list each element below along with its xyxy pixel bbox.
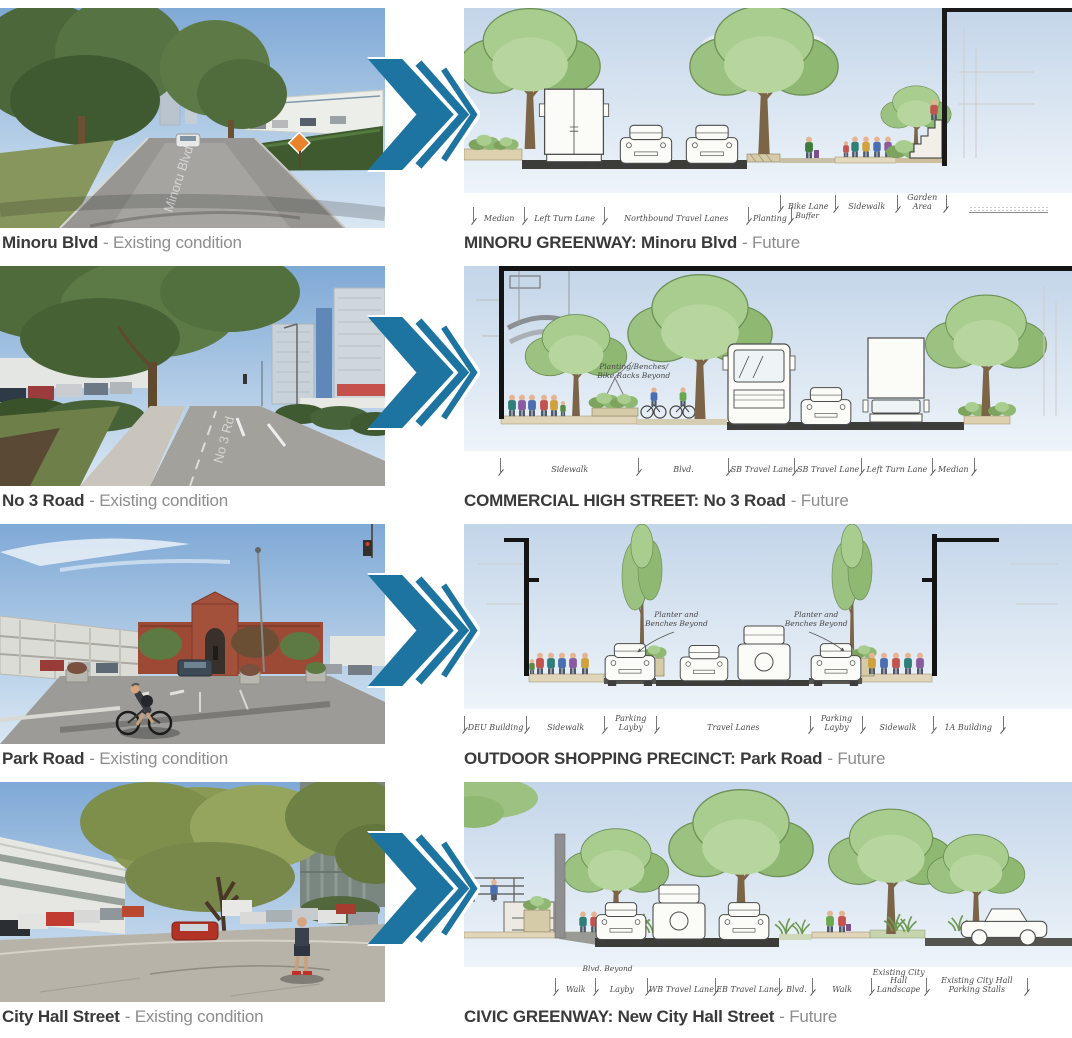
- future-section-no3road: Planting/Benches/ Bike Racks Beyond Side…: [464, 266, 1072, 486]
- dim-label: WB Travel Lane: [649, 986, 714, 995]
- photo-caption: Park Road- Existing condition: [2, 749, 228, 769]
- dim-segment: Northbound Travel Lanes: [604, 207, 748, 221]
- dim-segment: WB Travel Lane: [647, 978, 714, 992]
- street-photo: [0, 524, 385, 744]
- photo-caption: City Hall Street- Existing condition: [2, 1007, 263, 1027]
- dim-label: Left Turn Lane: [534, 215, 595, 224]
- bus-front: [723, 344, 795, 430]
- caption-status: - Future: [742, 233, 800, 252]
- dim-label: EB Travel Lane: [716, 986, 779, 995]
- dim-segment: Blvd.: [779, 978, 812, 992]
- dim-segment: SB Travel Lane: [794, 458, 860, 472]
- photo-caption: Minoru Blvd- Existing condition: [2, 233, 242, 253]
- street-name: Park Road: [2, 749, 84, 768]
- future-caption: OUTDOOR SHOPPING PRECINCT: Park Road- Fu…: [464, 749, 885, 769]
- future-section-parkroad: Planter and Benches Beyond Planter and B…: [464, 524, 1072, 744]
- dim-label: 1A Building: [944, 724, 992, 733]
- scheme-title: COMMERCIAL HIGH STREET: No 3 Road: [464, 491, 786, 510]
- dim-label: Median: [484, 215, 515, 224]
- dim-segment: Parking Layby: [604, 716, 656, 730]
- caption-status: - Existing condition: [89, 749, 228, 768]
- before-after-street-comparison: Minoru Blvd: [0, 0, 1072, 1038]
- transform-arrow-icon: [367, 312, 480, 434]
- dim-segment: Existing City Hall Landscape: [871, 978, 926, 992]
- existing-photo-no3-road: No 3 Rd: [0, 266, 385, 486]
- van-front: [653, 885, 705, 945]
- existing-photo-city-hall-street: [0, 782, 385, 1002]
- dimension-bar: Blvd. Beyond Walk Layby WB Travel Lane E…: [464, 968, 1072, 1000]
- cross-section-illustration: [464, 266, 1072, 451]
- comparison-row-cityhall: Blvd. Beyond Walk Layby WB Travel Lane E…: [0, 782, 1072, 1038]
- dim-label: Sidewalk: [551, 466, 588, 475]
- dim-label: Sidewalk: [848, 203, 885, 212]
- cross-section-illustration: [464, 8, 1072, 193]
- blvd-beyond-annotation: Blvd. Beyond: [583, 964, 633, 973]
- cross-section-illustration: [464, 524, 1072, 709]
- truck-rear: [539, 89, 608, 169]
- dim-label: Left Turn Lane: [867, 466, 928, 475]
- planter-annotation-left: Planter and Benches Beyond: [643, 610, 709, 628]
- caption-status: - Future: [827, 749, 885, 768]
- dim-segment: Sidewalk: [862, 716, 932, 730]
- caption-status: - Existing condition: [89, 491, 228, 510]
- dim-segment: Sidewalk: [835, 195, 897, 209]
- dim-label: Planting: [753, 215, 787, 224]
- dimension-bar: Sidewalk Blvd. SB Travel Lane SB Travel …: [464, 452, 1072, 484]
- street-name: Minoru Blvd: [2, 233, 98, 252]
- dim-label: Travel Lanes: [707, 724, 759, 733]
- transform-arrow-icon: [367, 54, 480, 176]
- dim-label: SB Travel Lane: [731, 466, 793, 475]
- street-name: No 3 Road: [2, 491, 84, 510]
- dim-segment: Median: [473, 207, 524, 221]
- street-photo: [0, 782, 385, 1002]
- truck-front: [863, 338, 929, 430]
- dim-segment: EB Travel Lane: [715, 978, 780, 992]
- dim-segment: Bike Lane: [780, 195, 835, 209]
- dim-segment: 1A Building: [933, 716, 1004, 730]
- scheme-title: MINORU GREENWAY: Minoru Blvd: [464, 233, 737, 252]
- dim-label: Parking Layby: [811, 715, 863, 733]
- dim-label: Northbound Travel Lanes: [624, 215, 728, 224]
- scheme-title: CIVIC GREENWAY: New City Hall Street: [464, 1007, 774, 1026]
- dim-label: DEU Building: [468, 724, 524, 733]
- dim-segment: Garden Area: [897, 195, 947, 209]
- dim-segment: Walk: [812, 978, 870, 992]
- dim-segment: Planting: [748, 207, 793, 221]
- future-caption: MINORU GREENWAY: Minoru Blvd- Future: [464, 233, 800, 253]
- dimension-bar: DEU Building Sidewalk Parking Layby Trav…: [464, 710, 1072, 742]
- dim-label: SB Travel Lane: [797, 466, 859, 475]
- dim-label: Blvd.: [786, 986, 807, 995]
- dim-segment: Left Turn Lane: [861, 458, 932, 472]
- cross-section-illustration: [464, 782, 1072, 967]
- dim-label: Parking Layby: [605, 715, 656, 733]
- van-front: [738, 626, 790, 686]
- existing-photo-park-road: [0, 524, 385, 744]
- buffer-callout: Buffer: [795, 211, 819, 220]
- dim-segment: Sidewalk: [526, 716, 604, 730]
- future-section-cityhall: Blvd. Beyond Walk Layby WB Travel Lane E…: [464, 782, 1072, 1002]
- dim-label: Existing City Hall Landscape: [872, 969, 926, 995]
- planter-annotation-right: Planter and Benches Beyond: [783, 610, 849, 628]
- caption-status: - Future: [791, 491, 849, 510]
- scheme-title: OUTDOOR SHOPPING PRECINCT: Park Road: [464, 749, 822, 768]
- dim-label: Sidewalk: [547, 724, 584, 733]
- transform-arrow-icon: [367, 828, 480, 950]
- dim-label: Median: [938, 466, 969, 475]
- dim-label: Layby: [610, 986, 634, 995]
- dim-label: Walk: [566, 986, 586, 995]
- caption-status: - Existing condition: [103, 233, 242, 252]
- dimension-bar: Median Left Turn Lane Northbound Travel …: [464, 194, 1072, 226]
- caption-status: - Future: [779, 1007, 837, 1026]
- dim-label: Garden Area: [898, 194, 946, 212]
- existing-photo-minoru-blvd: Minoru Blvd: [0, 8, 385, 228]
- street-name: City Hall Street: [2, 1007, 120, 1026]
- street-photo: Minoru Blvd: [0, 8, 385, 228]
- dim-segment: Walk: [555, 978, 595, 992]
- dim-label: Walk: [832, 986, 852, 995]
- transform-arrow-icon: [367, 570, 480, 692]
- dim-segment: Blvd.: [638, 458, 728, 472]
- future-caption: COMMERCIAL HIGH STREET: No 3 Road- Futur…: [464, 491, 849, 511]
- comparison-row-no3road: No 3 Rd: [0, 266, 1072, 524]
- dim-segment: Parking Layby: [810, 716, 863, 730]
- dim-segment: Existing City Hall Parking Stalls: [926, 978, 1029, 992]
- dim-segment: Sidewalk: [500, 458, 638, 472]
- dim-label: Existing City Hall Parking Stalls: [941, 977, 1012, 995]
- dim-segment: DEU Building: [464, 716, 526, 730]
- dim-label: Sidewalk: [880, 724, 917, 733]
- planting-annotation: Planting/Benches/ Bike Racks Beyond: [595, 362, 673, 380]
- caption-status: - Existing condition: [125, 1007, 264, 1026]
- dim-segment: Layby: [595, 978, 647, 992]
- dim-segment: Left Turn Lane: [524, 207, 604, 221]
- comparison-row-parkroad: Planter and Benches Beyond Planter and B…: [0, 524, 1072, 782]
- future-section-minoru: Median Left Turn Lane Northbound Travel …: [464, 8, 1072, 228]
- dim-segment: Median: [932, 458, 975, 472]
- ground-hatch-decor: [969, 206, 1048, 213]
- comparison-row-minoru: Minoru Blvd: [0, 8, 1072, 266]
- backpack: [141, 695, 153, 707]
- future-caption: CIVIC GREENWAY: New City Hall Street- Fu…: [464, 1007, 837, 1027]
- photo-caption: No 3 Road- Existing condition: [2, 491, 228, 511]
- dim-segment: Travel Lanes: [656, 716, 809, 730]
- street-photo: No 3 Rd: [0, 266, 385, 486]
- dim-segment: SB Travel Lane: [728, 458, 794, 472]
- dim-label: Blvd.: [673, 466, 694, 475]
